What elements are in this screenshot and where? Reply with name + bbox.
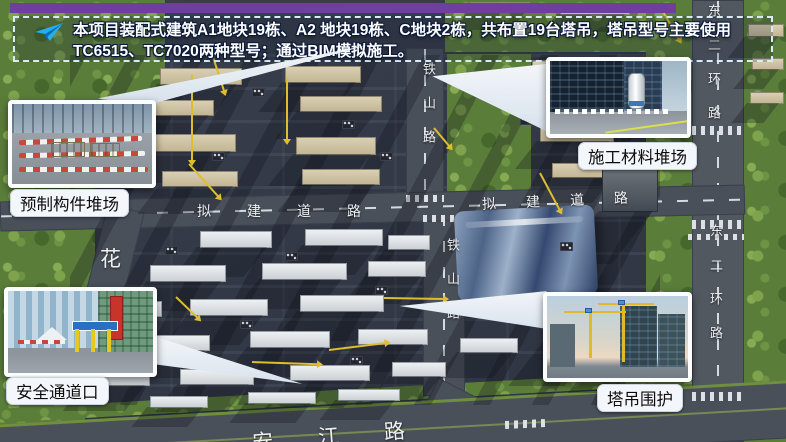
crane-cab	[618, 300, 625, 305]
construction-hoist	[110, 296, 123, 340]
building-block	[262, 263, 347, 280]
title-banner: 本项目装配式建筑A1地块19栋、A2 地块19栋、C地块2栋，共布置19台塔吊，…	[13, 16, 773, 62]
building-block	[302, 169, 380, 185]
unit-info-chip	[380, 152, 393, 161]
cement-silo	[628, 73, 645, 109]
road-label-proposed-left: 拟建道路	[197, 201, 397, 221]
crane-cab	[585, 308, 592, 313]
crane-jib	[598, 303, 654, 305]
unit-info-chip	[350, 356, 363, 365]
inset-building	[550, 324, 575, 367]
road-label-east-ring-lower: 东二环路	[706, 224, 725, 360]
crane-mast	[589, 311, 592, 359]
passage-canopy	[72, 321, 118, 331]
building-block	[300, 96, 382, 112]
bim-site-plan-view: 铁山路 铁山路 东二环路 东二环路 拟建道路 拟建道路 花 安江路 本项目装配式…	[0, 0, 786, 442]
building-block	[460, 338, 518, 353]
building-block	[338, 389, 400, 401]
building-block	[300, 295, 384, 312]
building-block	[150, 396, 208, 408]
building-block	[162, 171, 238, 187]
callout-label-crane-enclosure: 塔吊围护	[597, 384, 683, 412]
inset-image-safety-passage	[4, 287, 157, 377]
inset-buildings	[12, 104, 152, 133]
striped-fence	[18, 340, 64, 344]
paper-plane-icon	[33, 21, 65, 43]
unit-info-chip	[212, 152, 225, 161]
crane-mast	[622, 303, 625, 362]
building-block	[750, 92, 784, 104]
building-block	[296, 137, 376, 155]
unit-info-chip	[560, 242, 573, 251]
building-block	[250, 331, 330, 348]
white-tent	[37, 327, 67, 340]
crosswalk	[692, 392, 744, 401]
building-block	[305, 229, 383, 246]
banner-text: 本项目装配式建筑A1地块19栋、A2 地块19栋、C地块2栋，共布置19台塔吊，…	[73, 22, 731, 60]
inset-building-light	[662, 61, 687, 111]
building-block	[290, 365, 370, 381]
inset-image-precast-yard	[8, 100, 156, 188]
unit-info-chip	[165, 246, 178, 255]
building-block	[150, 265, 226, 282]
inset-highrise	[550, 61, 624, 116]
crosswalk	[406, 195, 444, 202]
unit-info-chip	[285, 252, 298, 261]
building-block	[358, 329, 428, 345]
unit-info-chip	[375, 286, 388, 295]
glass-tower	[658, 314, 685, 366]
callout-label-precast-yard: 预制构件堆场	[10, 189, 129, 217]
building-block	[285, 66, 361, 83]
unit-info-chip	[240, 320, 253, 329]
building-block	[392, 362, 446, 377]
road-label-hua: 花	[100, 243, 121, 273]
glass-tower	[620, 306, 657, 367]
inset-image-crane-enclosure	[543, 292, 692, 382]
inset-image-material-yard	[546, 57, 691, 138]
inset-ground	[8, 352, 153, 373]
striped-fence	[19, 167, 148, 172]
site-fence	[555, 109, 667, 114]
crane-leader-line	[286, 78, 288, 140]
callout-label-safety-passage: 安全通道口	[6, 377, 109, 405]
building-block	[388, 235, 430, 250]
building-block	[368, 261, 426, 277]
top-accent-bar	[10, 3, 676, 13]
unit-info-chip	[252, 88, 265, 97]
building-block	[200, 231, 272, 248]
industrial-hall-building	[454, 204, 599, 301]
precast-rack	[90, 143, 120, 157]
unit-info-chip	[342, 120, 355, 129]
crane-jib	[564, 311, 626, 313]
callout-label-material-yard: 施工材料堆场	[578, 142, 697, 170]
precast-rack	[51, 142, 85, 157]
building-block	[190, 299, 268, 316]
building-block	[248, 392, 316, 404]
building-block	[150, 134, 236, 152]
road-label-tieshan-lower: 铁山路	[443, 238, 462, 340]
